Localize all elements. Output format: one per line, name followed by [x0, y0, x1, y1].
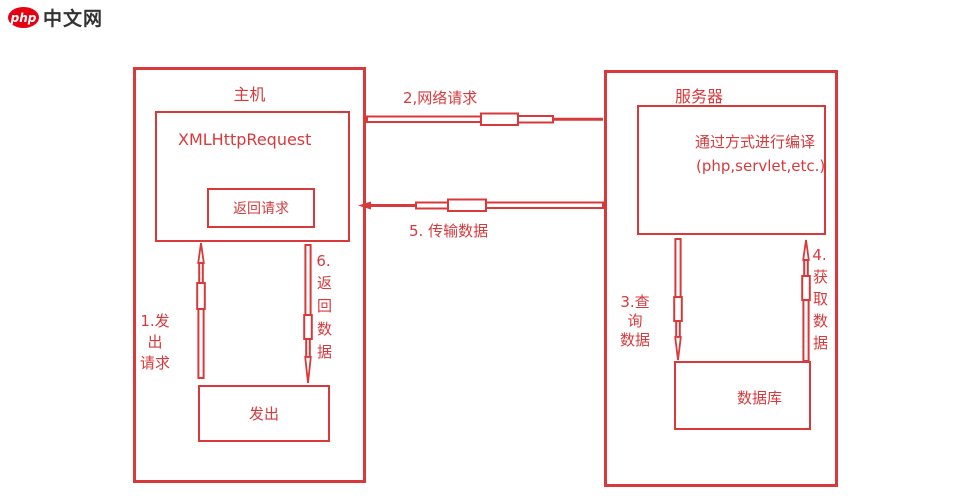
- network-request-arrow: [366, 111, 604, 128]
- return-request-box: 返回请求: [207, 188, 315, 228]
- query-data-arrow: [672, 238, 684, 361]
- compile-label-line2: (php,servlet,etc.): [696, 157, 825, 176]
- return-data-arrow: [302, 244, 314, 384]
- transfer-data-arrow: [358, 197, 604, 214]
- database-label: 数据库: [737, 389, 782, 408]
- return-request-label: 返回请求: [233, 198, 289, 218]
- return-data-label: 6. 返回数据: [316, 252, 331, 367]
- send-label: 发出: [249, 403, 279, 424]
- compile-label-line1: 通过方式进行编译: [695, 133, 815, 152]
- send-box: 发出: [198, 385, 330, 442]
- ajax-flow-diagram: php 中文网 主机 XMLHttpRequest 返回请求 发出 1.发出 请…: [0, 0, 956, 500]
- site-logo: php 中文网: [8, 4, 103, 31]
- server-title: 服务器: [604, 87, 794, 107]
- transfer-data-label: 5. 传输数据: [409, 222, 488, 241]
- xhr-label: XMLHttpRequest: [178, 130, 311, 150]
- php-logo-icon: php: [8, 7, 39, 28]
- logo-text: 中文网: [43, 4, 103, 31]
- network-request-label: 2,网络请求: [403, 89, 477, 108]
- fetch-data-label: 4. 获取数据: [812, 246, 827, 357]
- send-request-arrow: [195, 243, 207, 380]
- query-data-label: 3.查询 数据: [613, 293, 657, 350]
- host-title: 主机: [133, 85, 366, 105]
- send-request-label: 1.发出 请求: [134, 311, 176, 374]
